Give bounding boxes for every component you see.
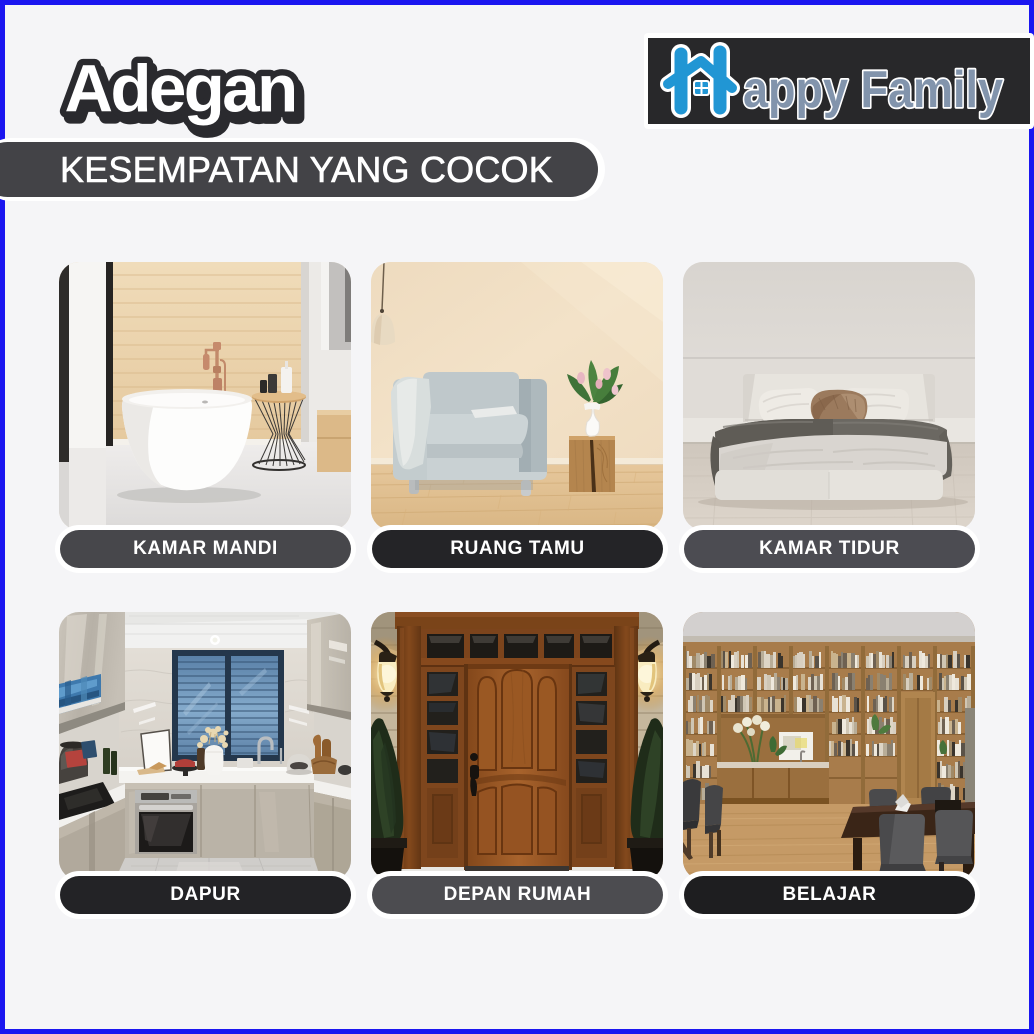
svg-text:appy Family: appy Family [743,61,1003,119]
svg-text:Adegan: Adegan [64,51,295,126]
